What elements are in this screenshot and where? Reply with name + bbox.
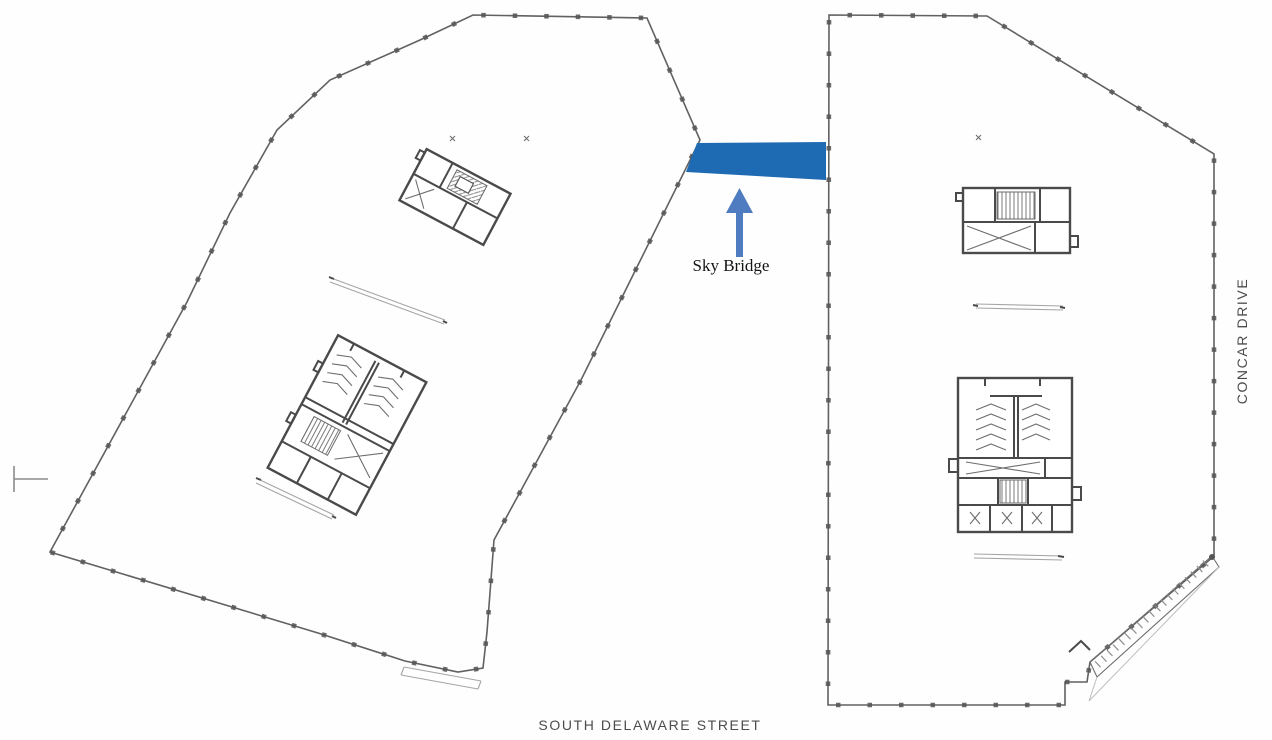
left-building-column-ticks	[50, 15, 700, 672]
right-building-outline	[828, 15, 1214, 705]
grid-mark-icon	[450, 136, 455, 141]
grid-mark-icon	[524, 136, 529, 141]
right-building	[828, 15, 1219, 705]
street-label-concar-drive: CONCAR DRIVE	[1234, 278, 1250, 405]
right-building-upper-core	[956, 188, 1078, 253]
sky-bridge: Sky Bridge	[686, 142, 826, 275]
left-building-central-core	[263, 333, 427, 515]
survey-marker-icon	[14, 466, 48, 492]
left-building	[50, 15, 700, 689]
left-building-outline	[50, 15, 700, 672]
left-building-upper-core	[395, 147, 511, 245]
sky-bridge-label: Sky Bridge	[693, 256, 770, 275]
sky-bridge-shape	[686, 142, 826, 180]
stair-treads	[1096, 563, 1206, 666]
right-building-lower-core	[949, 378, 1081, 532]
corner-exterior-stair	[1069, 554, 1219, 701]
grid-mark-icon	[976, 135, 981, 140]
sky-bridge-arrow-icon	[726, 188, 753, 257]
street-label-south-delaware: SOUTH DELAWARE STREET	[538, 717, 761, 733]
floor-plan-canvas: Sky Bridge SOUTH DELAWARE STREET CONCAR …	[0, 0, 1272, 740]
site-plan-drawing: Sky Bridge SOUTH DELAWARE STREET CONCAR …	[0, 0, 1272, 740]
